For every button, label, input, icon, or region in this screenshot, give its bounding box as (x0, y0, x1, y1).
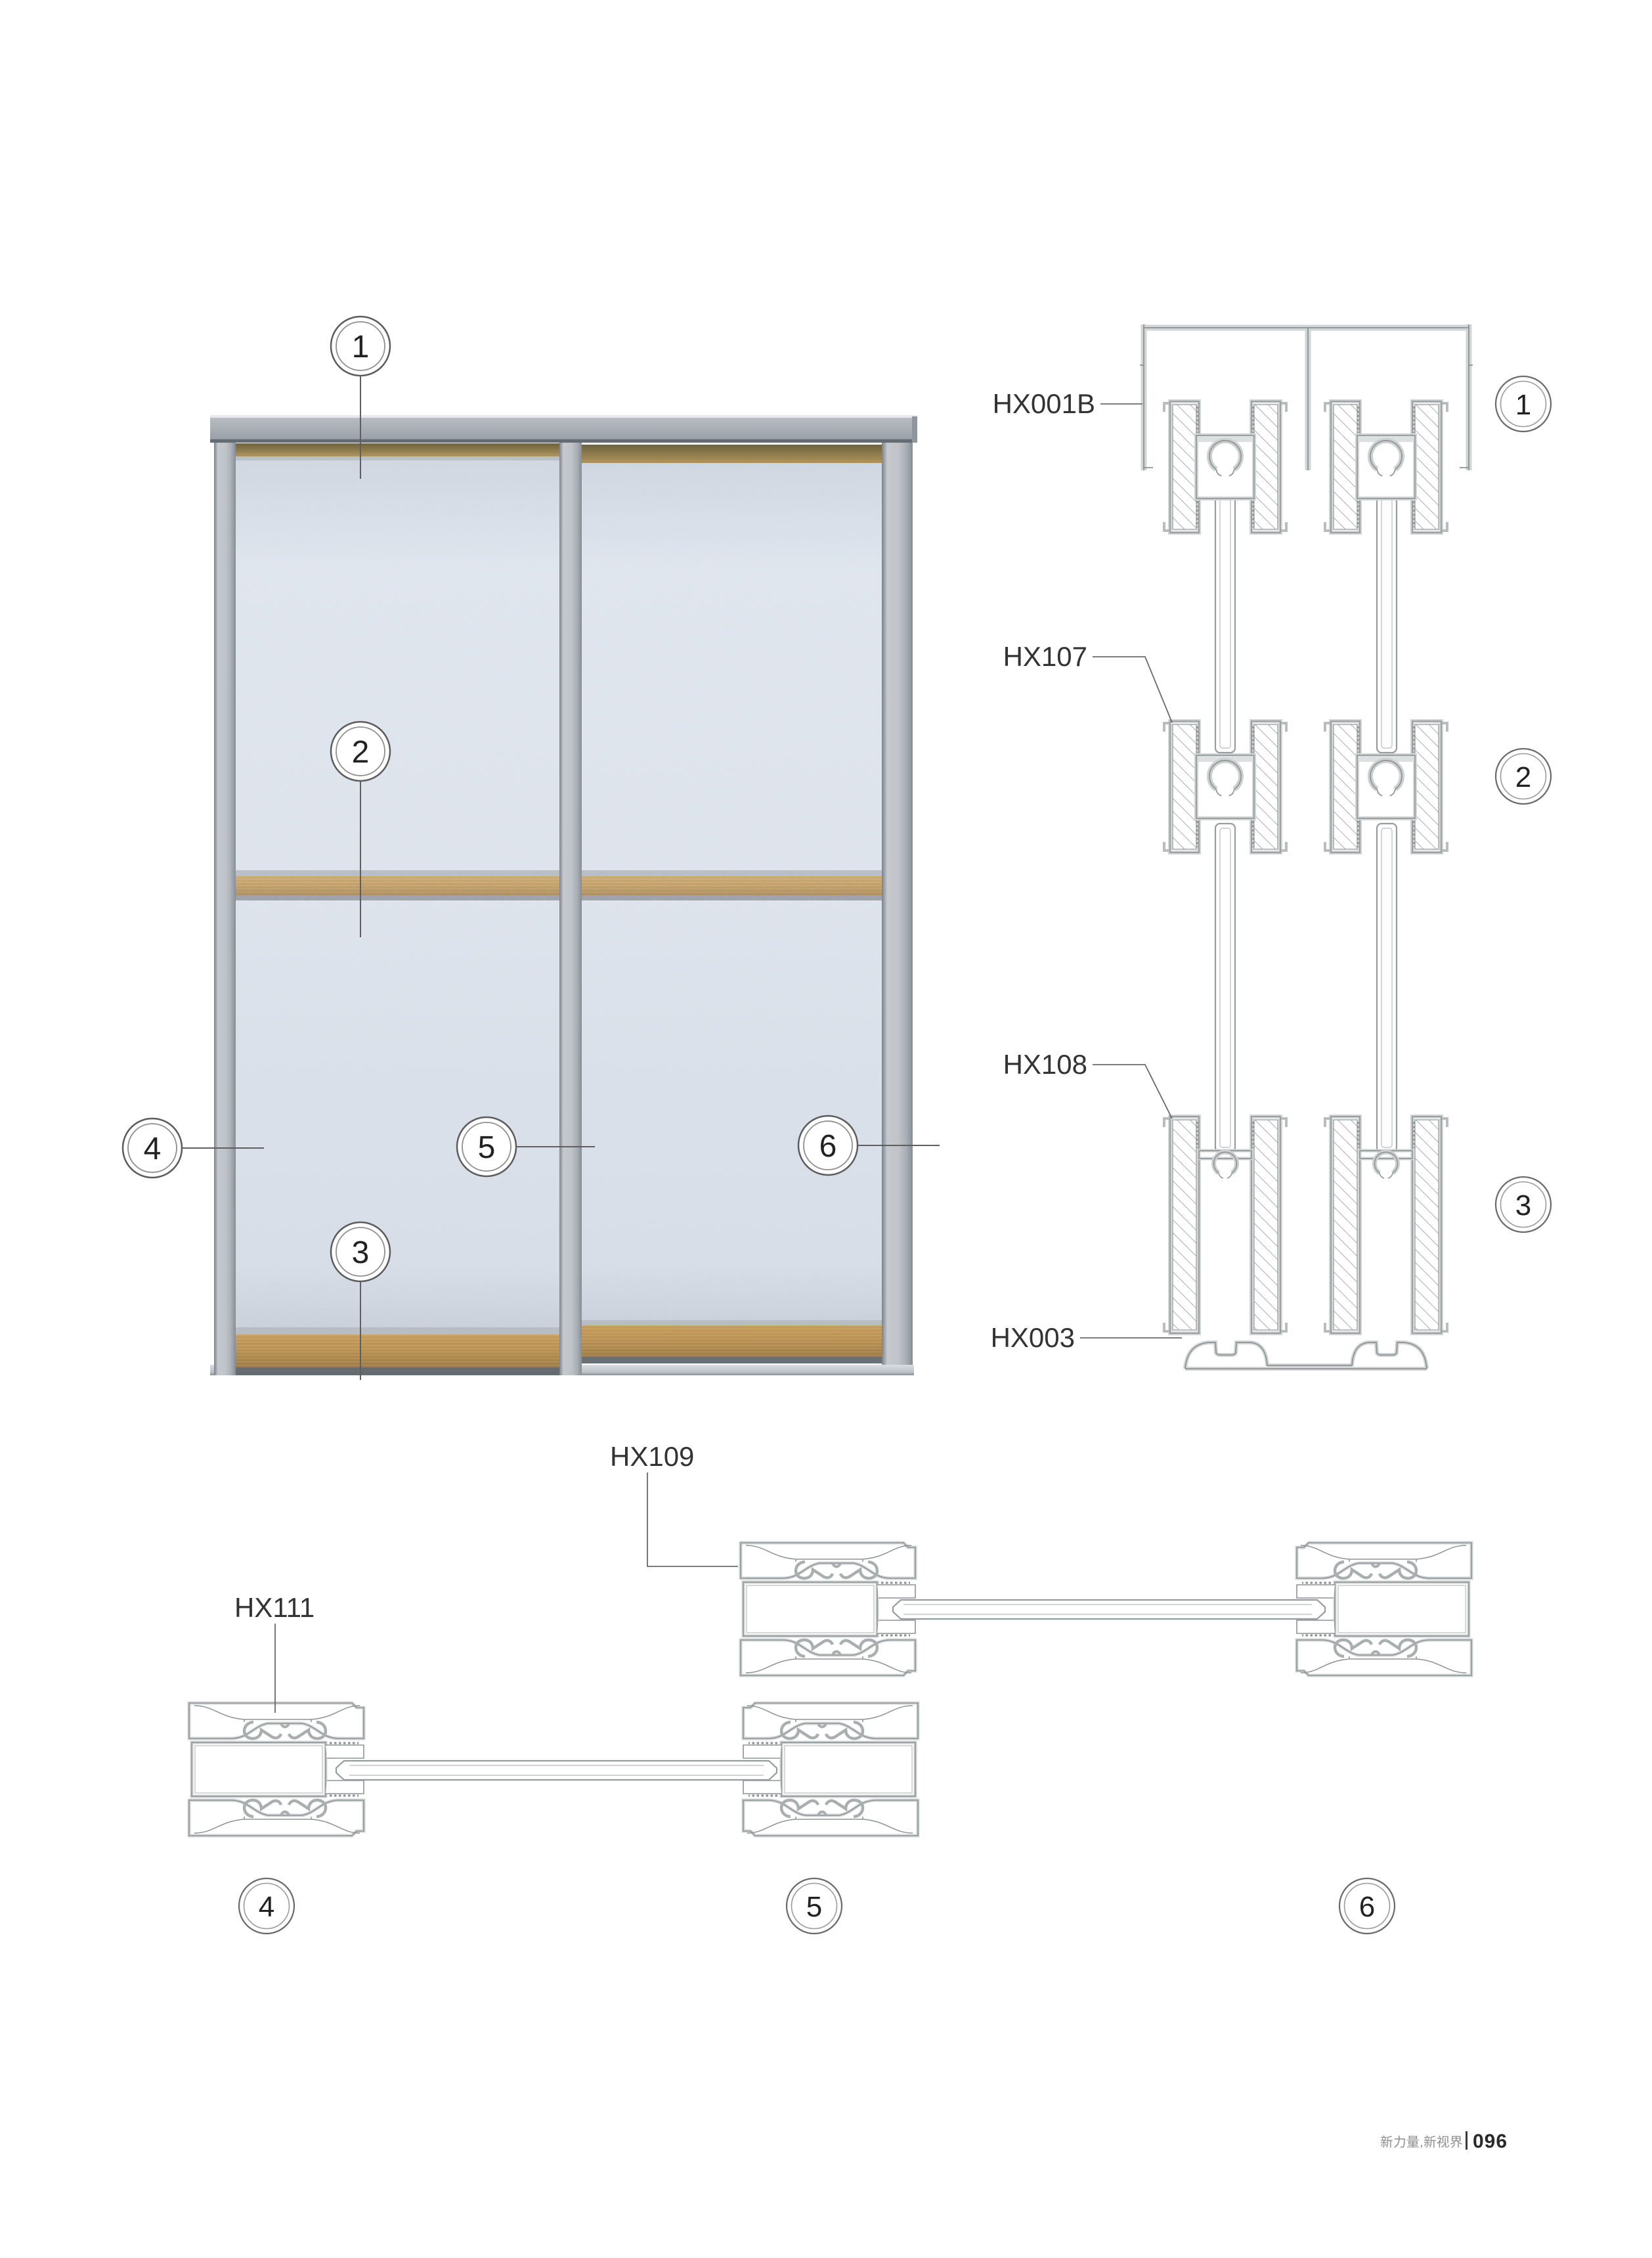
svg-text:2: 2 (352, 735, 370, 770)
svg-text:5: 5 (806, 1891, 822, 1923)
svg-text:HX001B: HX001B (993, 388, 1095, 419)
svg-text:HX003: HX003 (991, 1322, 1075, 1353)
svg-text:新力量,新视界: 新力量,新视界 (1380, 2135, 1463, 2150)
svg-text:HX111: HX111 (234, 1592, 315, 1623)
svg-text:6: 6 (819, 1129, 837, 1164)
svg-text:3: 3 (352, 1235, 370, 1270)
svg-text:HX107: HX107 (1003, 641, 1087, 672)
svg-text:6: 6 (1359, 1891, 1375, 1923)
svg-text:HX109: HX109 (610, 1441, 694, 1472)
svg-text:3: 3 (1515, 1189, 1531, 1222)
svg-text:4: 4 (259, 1891, 274, 1923)
svg-text:2: 2 (1515, 761, 1531, 793)
svg-text:1: 1 (1515, 389, 1531, 421)
svg-text:096: 096 (1473, 2131, 1508, 2152)
svg-text:4: 4 (144, 1132, 162, 1166)
svg-text:5: 5 (478, 1130, 496, 1165)
svg-text:HX108: HX108 (1003, 1049, 1087, 1080)
svg-text:1: 1 (352, 330, 370, 365)
